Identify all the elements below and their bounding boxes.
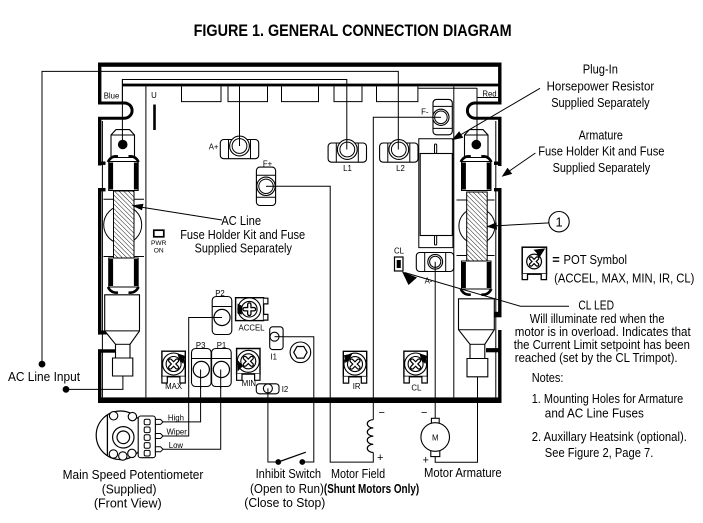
svg-text:P3: P3 <box>196 341 206 350</box>
svg-text:I2: I2 <box>282 385 289 394</box>
svg-text:ACCEL: ACCEL <box>239 323 266 332</box>
svg-text:F-: F- <box>421 108 429 117</box>
svg-text:MIN: MIN <box>242 379 256 388</box>
svg-text:−: − <box>421 407 427 419</box>
svg-text:Supplied Separately: Supplied Separately <box>195 241 293 256</box>
svg-text:AC Line Input: AC Line Input <box>8 369 80 384</box>
svg-text:−: − <box>379 407 385 419</box>
svg-text:MAX: MAX <box>165 382 183 391</box>
svg-text:Fuse Holder Kit and Fuse: Fuse Holder Kit and Fuse <box>538 143 664 158</box>
svg-text:Red: Red <box>482 89 496 98</box>
svg-text:Supplied Separately: Supplied Separately <box>551 95 650 110</box>
svg-text:Supplied Separately: Supplied Separately <box>553 160 651 175</box>
svg-text:and AC Line Fuses: and AC Line Fuses <box>545 406 644 421</box>
svg-text:See Figure 2, Page 7.: See Figure 2, Page 7. <box>545 445 654 460</box>
svg-text:IR: IR <box>353 382 361 391</box>
svg-text:AC Line: AC Line <box>221 213 261 228</box>
svg-text:Main Speed Potentiometer: Main Speed Potentiometer <box>63 467 204 482</box>
svg-text:Low: Low <box>169 441 184 450</box>
svg-text:L2: L2 <box>396 164 405 173</box>
svg-text:(Open to Run): (Open to Run) <box>250 481 324 496</box>
svg-text:Motor Armature: Motor Armature <box>424 465 502 480</box>
svg-text:L1: L1 <box>343 164 352 173</box>
svg-text:+: + <box>377 452 383 464</box>
svg-text:High: High <box>168 414 184 423</box>
svg-text:Notes:: Notes: <box>532 370 564 385</box>
svg-text:Plug-In: Plug-In <box>583 62 618 77</box>
svg-text:Motor Field: Motor Field <box>331 466 385 481</box>
svg-text:(Front View): (Front View) <box>94 496 162 511</box>
svg-text:ON: ON <box>154 248 164 255</box>
svg-text:M: M <box>432 434 439 443</box>
svg-text:1. Mounting Holes for Armature: 1. Mounting Holes for Armature <box>532 391 684 406</box>
svg-text:(Supplied): (Supplied) <box>102 481 157 496</box>
svg-text:CL: CL <box>411 383 422 392</box>
svg-text:1: 1 <box>555 215 562 230</box>
svg-text:=: = <box>552 252 559 267</box>
svg-text:2. Auxillary Heatsink (optiona: 2. Auxillary Heatsink (optional). <box>532 429 687 444</box>
svg-text:F+: F+ <box>263 160 273 169</box>
svg-text:P1: P1 <box>217 341 227 350</box>
svg-text:A-: A- <box>425 277 433 286</box>
svg-text:Blue: Blue <box>104 92 120 101</box>
svg-text:Horsepower Resistor: Horsepower Resistor <box>547 78 655 93</box>
svg-text:(ACCEL, MAX, MIN, IR, CL): (ACCEL, MAX, MIN, IR, CL) <box>554 271 694 286</box>
svg-text:reached (set by the CL Trimpot: reached (set by the CL Trimpot). <box>515 350 678 365</box>
svg-text:PWR: PWR <box>151 240 167 247</box>
svg-text:I1: I1 <box>270 353 277 362</box>
svg-text:FIGURE 1. GENERAL CONNECTION D: FIGURE 1. GENERAL CONNECTION DIAGRAM <box>194 22 512 40</box>
svg-text:Inhibit Switch: Inhibit Switch <box>256 466 322 481</box>
svg-text:POT Symbol: POT Symbol <box>564 252 628 267</box>
svg-text:Armature: Armature <box>579 128 623 143</box>
svg-text:U: U <box>151 91 157 100</box>
svg-text:P2: P2 <box>215 289 225 298</box>
svg-text:Wiper: Wiper <box>167 428 188 437</box>
svg-text:CL: CL <box>394 247 405 256</box>
svg-text:A+: A+ <box>209 143 219 152</box>
svg-text:(Shunt Motors Only): (Shunt Motors Only) <box>324 481 419 496</box>
svg-text:(Close to Stop): (Close to Stop) <box>244 495 325 510</box>
